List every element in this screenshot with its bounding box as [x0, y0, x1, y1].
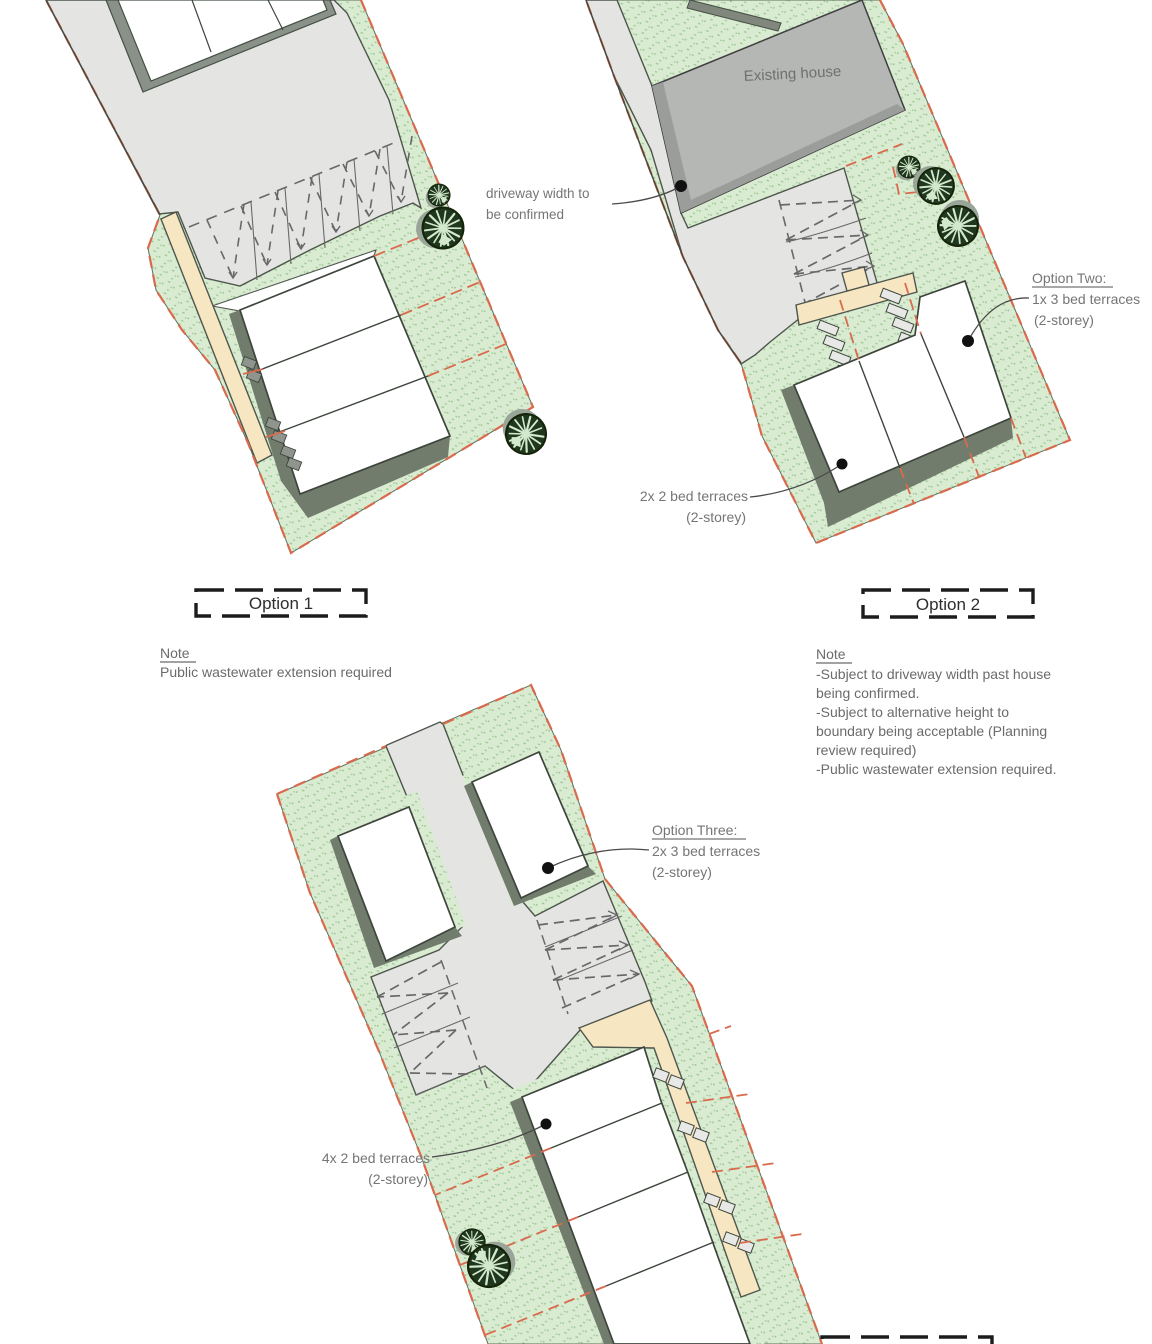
svg-text:boundary being acceptable (Pla: boundary being acceptable (Planning [816, 723, 1047, 739]
svg-text:-Public wastewater extension r: -Public wastewater extension required. [816, 761, 1056, 777]
svg-text:Public wastewater extension re: Public wastewater extension required [160, 664, 392, 680]
svg-text:Option Two:: Option Two: [1032, 270, 1106, 286]
svg-text:being confirmed.: being confirmed. [816, 685, 920, 701]
svg-text:4x 2 bed terraces: 4x 2 bed terraces [322, 1150, 430, 1166]
svg-text:(2-storey): (2-storey) [686, 509, 746, 525]
svg-text:Option 1: Option 1 [249, 594, 313, 613]
svg-text:Note: Note [816, 646, 846, 662]
svg-text:Option 2: Option 2 [916, 595, 980, 614]
svg-text:driveway width to: driveway width to [486, 186, 590, 201]
svg-text:2x 3 bed terraces: 2x 3 bed terraces [652, 843, 760, 859]
svg-text:(2-storey): (2-storey) [368, 1171, 428, 1187]
svg-text:Option Three:: Option Three: [652, 822, 737, 838]
svg-text:be confirmed: be confirmed [486, 207, 564, 222]
svg-text:-Subject to driveway width pas: -Subject to driveway width past house [816, 666, 1051, 682]
svg-text:(2-storey): (2-storey) [652, 864, 712, 880]
svg-text:Note: Note [160, 645, 190, 661]
svg-text:2x 2 bed terraces: 2x 2 bed terraces [640, 488, 748, 504]
svg-text:-Subject to alternative height: -Subject to alternative height to [816, 704, 1009, 720]
svg-text:1x 3 bed terraces: 1x 3 bed terraces [1032, 291, 1140, 307]
svg-text:review required): review required) [816, 742, 916, 758]
svg-text:(2-storey): (2-storey) [1034, 312, 1094, 328]
